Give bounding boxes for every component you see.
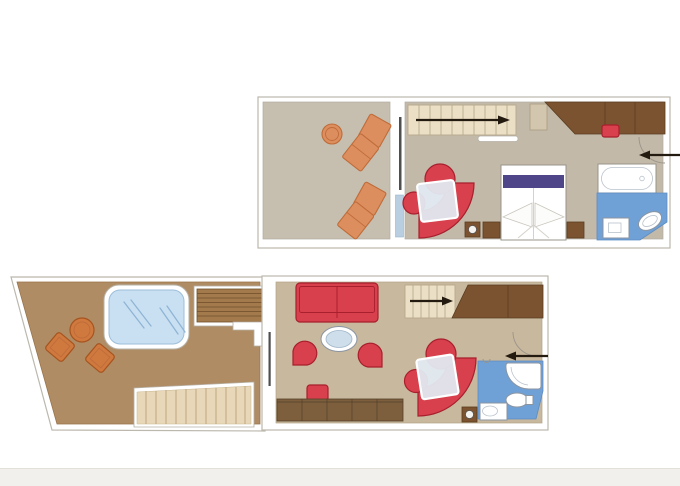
page-footer-band [0, 468, 680, 486]
terrace-round-table [70, 318, 94, 342]
glass-table [417, 180, 458, 222]
glass-pane [396, 195, 404, 237]
side-table [465, 222, 480, 237]
wardrobe [452, 285, 543, 318]
tub-chair [293, 341, 317, 365]
tub-chair [358, 343, 382, 367]
dresser [530, 104, 547, 130]
bed-runner [503, 175, 564, 188]
washbasin [480, 403, 507, 420]
double-bed [501, 165, 566, 240]
handrail [478, 136, 518, 142]
oval-coffee-table [321, 327, 357, 352]
toilet [506, 393, 533, 407]
terrace-round-table [322, 124, 342, 144]
glass-table [416, 354, 459, 399]
side-table [462, 407, 477, 422]
deck-steps [134, 382, 254, 427]
whirlpool-bath [104, 285, 189, 349]
nightstand [567, 222, 584, 238]
floor-plan-page [0, 0, 680, 486]
washbasin [603, 218, 629, 238]
sofa [296, 283, 378, 322]
desk-sideboard [277, 399, 403, 421]
lower-deck-plan [8, 272, 564, 434]
staircase [405, 285, 455, 318]
sliding-glass-door [269, 332, 271, 386]
sliding-glass-door [399, 117, 402, 190]
bathtub [598, 164, 656, 193]
nightstand [483, 222, 500, 238]
upper-deck-plan [256, 95, 680, 253]
stool [602, 125, 619, 137]
